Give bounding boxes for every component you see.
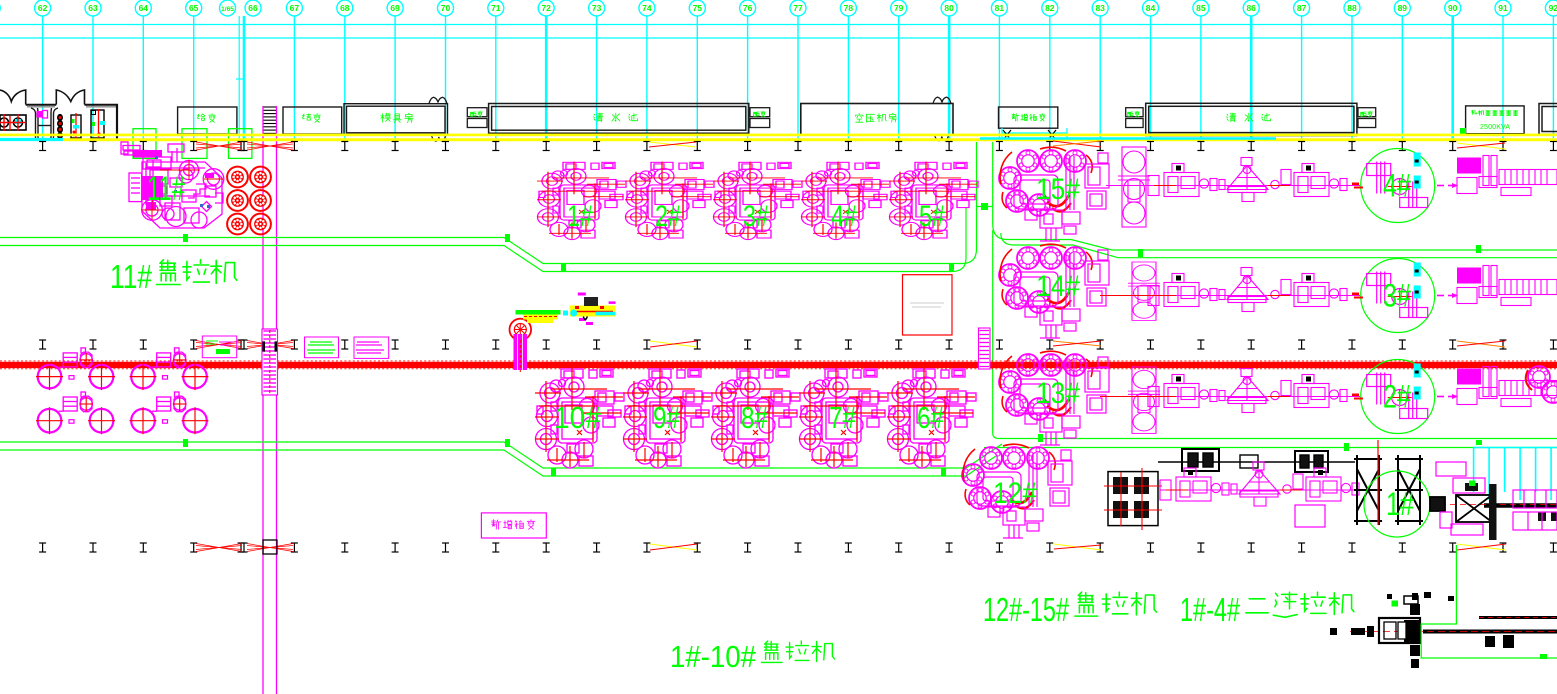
svg-text:92: 92 — [1549, 3, 1557, 13]
svg-text:2#: 2# — [1383, 379, 1411, 415]
svg-text:11#: 11# — [110, 258, 153, 295]
svg-text:12#: 12# — [993, 477, 1037, 510]
svg-text:78: 78 — [844, 3, 854, 13]
svg-text:80: 80 — [944, 3, 954, 13]
svg-text:64: 64 — [139, 3, 149, 13]
svg-text:2#: 2# — [655, 200, 681, 233]
svg-text:67: 67 — [290, 3, 300, 13]
svg-text:6#: 6# — [917, 400, 945, 435]
svg-text:5#: 5# — [919, 200, 945, 233]
svg-text:91: 91 — [1498, 3, 1508, 13]
svg-text:65: 65 — [189, 3, 199, 13]
svg-text:83: 83 — [1095, 3, 1105, 13]
svg-text:12#-15#: 12#-15# — [983, 591, 1069, 628]
svg-text:10#: 10# — [554, 400, 602, 435]
svg-text:1#-10#: 1#-10# — [670, 639, 757, 674]
svg-text:71: 71 — [491, 3, 501, 13]
svg-text:88: 88 — [1347, 3, 1357, 13]
svg-text:11#: 11# — [147, 170, 185, 208]
svg-text:87: 87 — [1297, 3, 1307, 13]
svg-text:3#: 3# — [1383, 278, 1411, 314]
svg-text:3#: 3# — [743, 200, 769, 233]
svg-text:9#: 9# — [653, 400, 681, 435]
svg-text:84: 84 — [1146, 3, 1156, 13]
svg-text:85: 85 — [1196, 3, 1206, 13]
svg-text:15#: 15# — [1036, 173, 1080, 206]
svg-text:73: 73 — [592, 3, 602, 13]
svg-text:1/65: 1/65 — [221, 6, 234, 13]
svg-text:63: 63 — [88, 3, 98, 13]
svg-text:89: 89 — [1398, 3, 1408, 13]
svg-text:66: 66 — [248, 3, 258, 13]
svg-text:86: 86 — [1246, 3, 1256, 13]
svg-text:14#: 14# — [1036, 270, 1080, 303]
svg-text:1#-4#: 1#-4# — [1180, 591, 1240, 628]
svg-text:77: 77 — [793, 3, 803, 13]
svg-text:4#: 4# — [1383, 168, 1411, 204]
svg-text:74: 74 — [642, 3, 652, 13]
svg-text:62: 62 — [38, 3, 48, 13]
svg-text:72: 72 — [541, 3, 551, 13]
svg-text:69: 69 — [390, 3, 400, 13]
svg-text:81: 81 — [995, 3, 1005, 13]
svg-text:7#: 7# — [829, 400, 857, 435]
svg-text:68: 68 — [340, 3, 350, 13]
svg-text:4#: 4# — [831, 200, 857, 233]
svg-text:79: 79 — [894, 3, 904, 13]
svg-text:13#: 13# — [1036, 377, 1080, 410]
svg-text:1#: 1# — [1386, 486, 1414, 522]
svg-text:2500KVA: 2500KVA — [1480, 124, 1510, 131]
svg-text:76: 76 — [743, 3, 753, 13]
svg-text:75: 75 — [693, 3, 703, 13]
svg-text:82: 82 — [1045, 3, 1055, 13]
svg-text:90: 90 — [1448, 3, 1458, 13]
svg-text:1#: 1# — [567, 200, 593, 233]
svg-text:70: 70 — [441, 3, 451, 13]
svg-text:8#: 8# — [741, 400, 769, 435]
